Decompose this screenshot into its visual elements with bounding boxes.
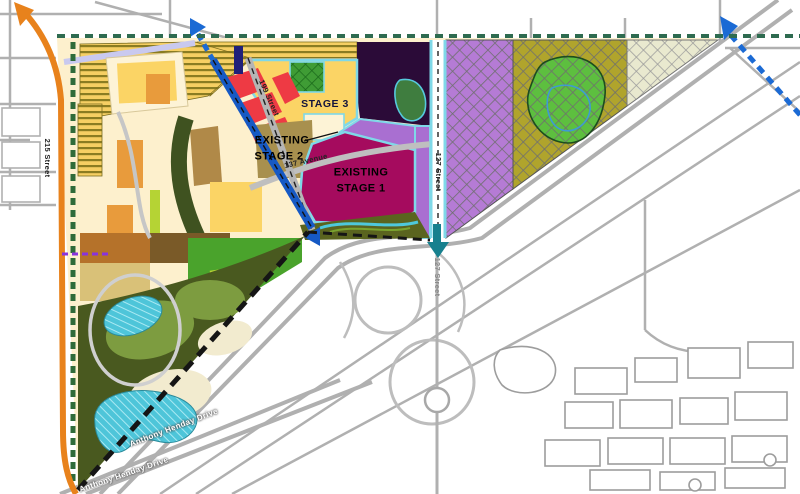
street-127-south-label: 127 Street: [433, 258, 441, 297]
map-graphics: [0, 0, 800, 494]
street-215-label: 215 Street: [43, 139, 51, 178]
street-127-corridor: [427, 40, 449, 258]
existing-stage1-label-line1: EXISTING: [334, 168, 389, 179]
existing-stage1-label-line2: STAGE 1: [336, 184, 385, 195]
existing-stage2-label-line1: EXISTING: [255, 136, 310, 147]
map-canvas: STAGE 3 EXISTING STAGE 2 EXISTING STAGE …: [0, 0, 800, 494]
street-127-north-label: 127 Street: [434, 153, 442, 192]
stage3-label: STAGE 3: [301, 99, 349, 110]
plan-area: [57, 38, 718, 490]
